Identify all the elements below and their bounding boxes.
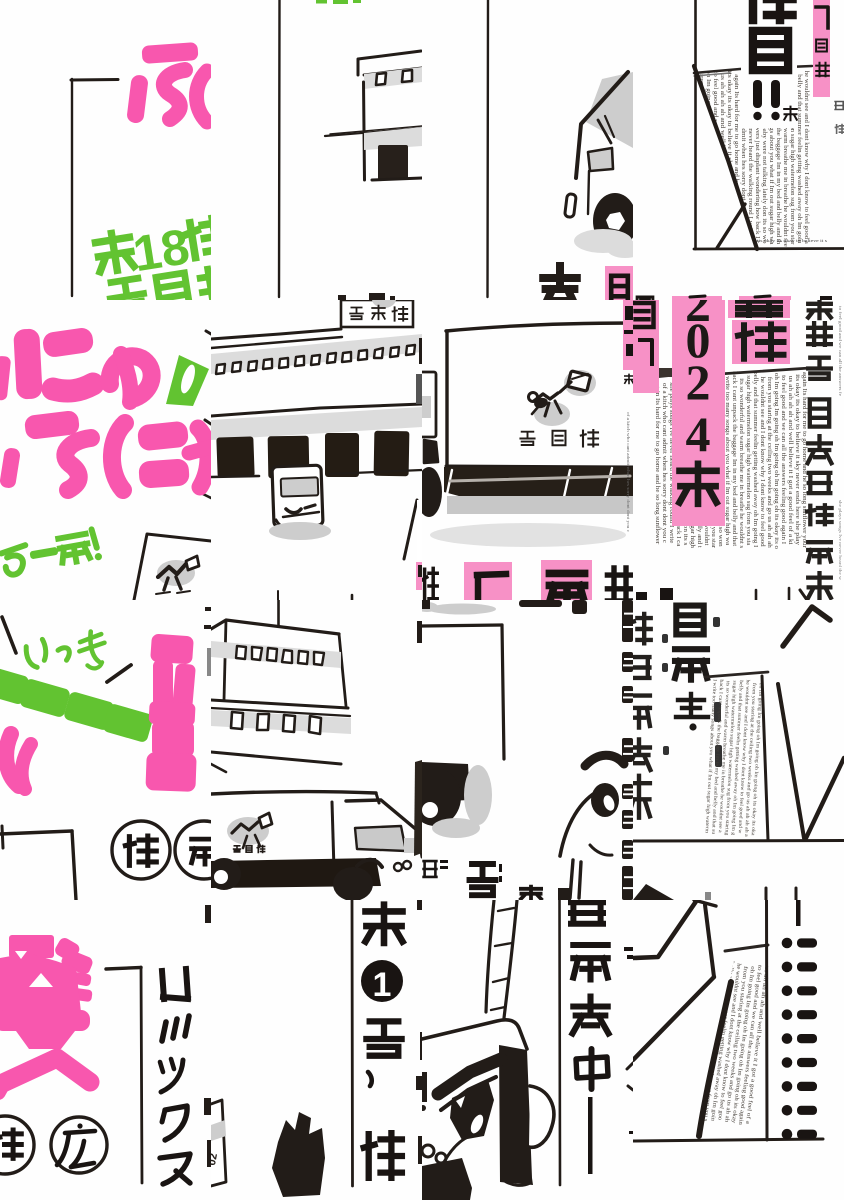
svg-text:to feel good and we can all th: to feel good and we can all the answers … [780,375,787,544]
svg-text:of a kitch who cant admit when: of a kitch who cant admit when hes sorry… [661,383,668,543]
svg-text:she plays songs Ive never hear: she plays songs Ive never heard the w [838,500,843,581]
svg-text:1: 1 [373,966,392,1004]
svg-text:back I cant unpack the baggage: back I cant unpack the baggage Im in my … [731,371,737,546]
svg-text:he wouldnt see and I dont know: he wouldnt see and I dont know why I don… [759,377,766,547]
svg-text:its so wonderful and warm brea: its so wonderful and warm breathe me in … [738,378,745,549]
svg-text:he wouldnt see and I dont know: he wouldnt see and I dont know why I don… [803,71,810,244]
svg-text:its okay its okay to believe i: its okay its okay to believe it sky neve… [794,374,800,545]
svg-text:2: 2 [686,354,711,410]
svg-text:sugar high watermelon sugar hi: sugar high watermelon sugar high waterme… [745,375,752,545]
svg-text:of a kitch who cant admit when: of a kitch who cant admit when hes sorry… [626,412,631,532]
svg-text:us ah ah ah ah and well believ: us ah ah ah ah and well believe it I got… [787,376,794,545]
svg-text:again Its hard for me to go ho: again Its hard for me to go home and he … [654,381,661,544]
svg-text:from you staring at the ceilin: from you staring at the ceiling two week… [766,377,773,548]
svg-text:I write too many songs about y: I write too many songs about you what if… [724,372,731,545]
svg-text:belly and that summer feelin g: belly and that summer feelin getting was… [796,74,803,243]
svg-text:to feel good and we can all th: to feel good and we can all the answers … [838,306,843,396]
svg-text:4: 4 [686,406,711,462]
svg-text:oh Im going Im going oh Im goi: oh Im going Im going oh Im going oh Im g… [773,373,779,549]
svg-text:belly and that summer feelin g: belly and that summer feelin getting was… [752,371,759,547]
svg-text:its okay its okay to believe i: its okay its okay to believe it s [757,238,827,243]
